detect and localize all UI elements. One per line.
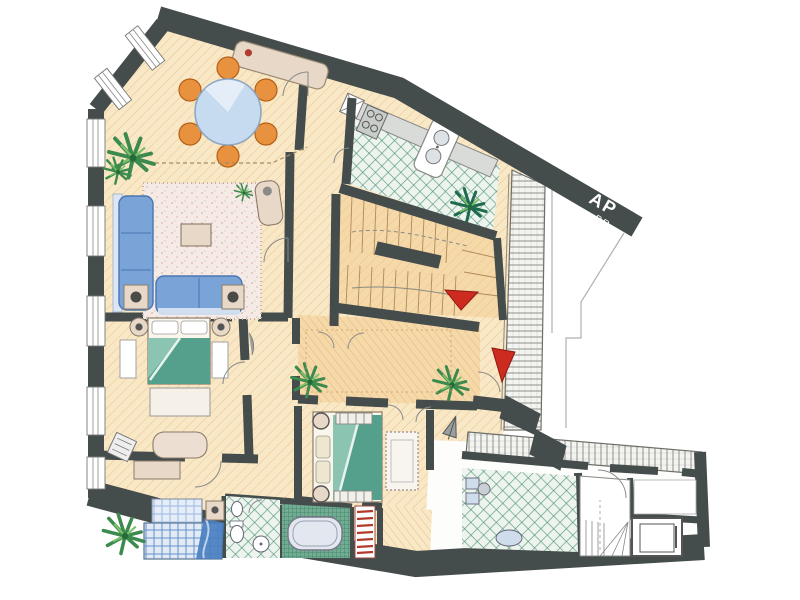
bathtub <box>288 517 342 550</box>
elevator <box>632 518 682 556</box>
sink <box>466 493 479 504</box>
pedestal <box>478 483 490 495</box>
side-table-lamp-left <box>124 285 148 309</box>
bedpost-lamp <box>313 486 329 502</box>
wall-annex-right <box>700 452 704 547</box>
sink <box>466 478 479 489</box>
pillow <box>152 321 178 334</box>
bedroom2-plant <box>103 514 143 553</box>
dresser <box>134 461 180 479</box>
floor-plan-drawing: AP PR <box>0 0 800 600</box>
room-bathroom-tub <box>282 504 350 558</box>
annex-room <box>634 480 696 514</box>
armchair <box>153 432 207 458</box>
coffee-table <box>181 224 211 246</box>
floor-plan-page: AP PR <box>0 0 800 600</box>
bidet <box>232 502 243 517</box>
laundry-bathroom <box>462 468 578 552</box>
pillow <box>181 321 207 334</box>
pillow <box>316 436 330 458</box>
basin <box>496 530 522 546</box>
pillow <box>316 461 330 483</box>
stair-secondary <box>580 476 630 556</box>
toilet <box>231 526 244 543</box>
towel-rack <box>355 506 375 558</box>
side-table-lamp-right <box>222 285 244 309</box>
foot-bench <box>150 388 210 416</box>
bedpost-lamp <box>313 413 329 429</box>
room-bathroom-wc <box>226 496 280 558</box>
bedside-bench <box>120 340 136 378</box>
